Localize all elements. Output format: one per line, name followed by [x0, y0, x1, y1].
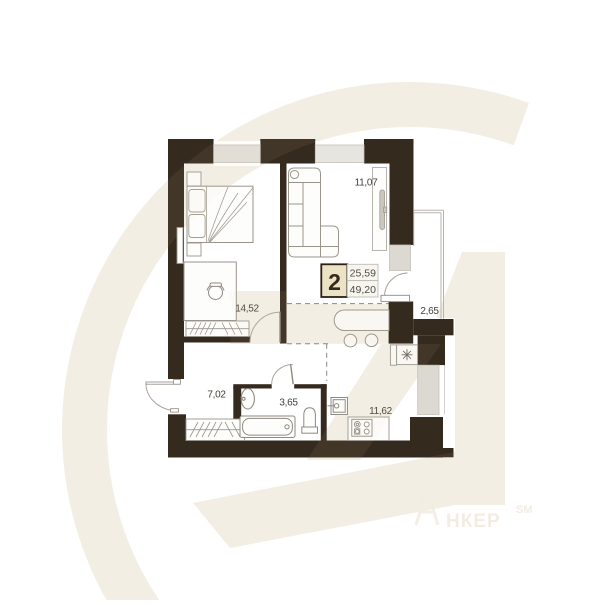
svg-text:7,02: 7,02: [207, 390, 226, 401]
svg-text:2,65: 2,65: [420, 306, 439, 317]
svg-text:25,59: 25,59: [350, 268, 376, 280]
svg-text:3,65: 3,65: [279, 398, 298, 409]
svg-text:НКЕР: НКЕР: [446, 511, 501, 532]
svg-text:SM: SM: [516, 504, 533, 516]
svg-text:11,07: 11,07: [355, 178, 379, 189]
svg-text:2: 2: [328, 269, 341, 295]
svg-text:49,20: 49,20: [350, 284, 376, 296]
